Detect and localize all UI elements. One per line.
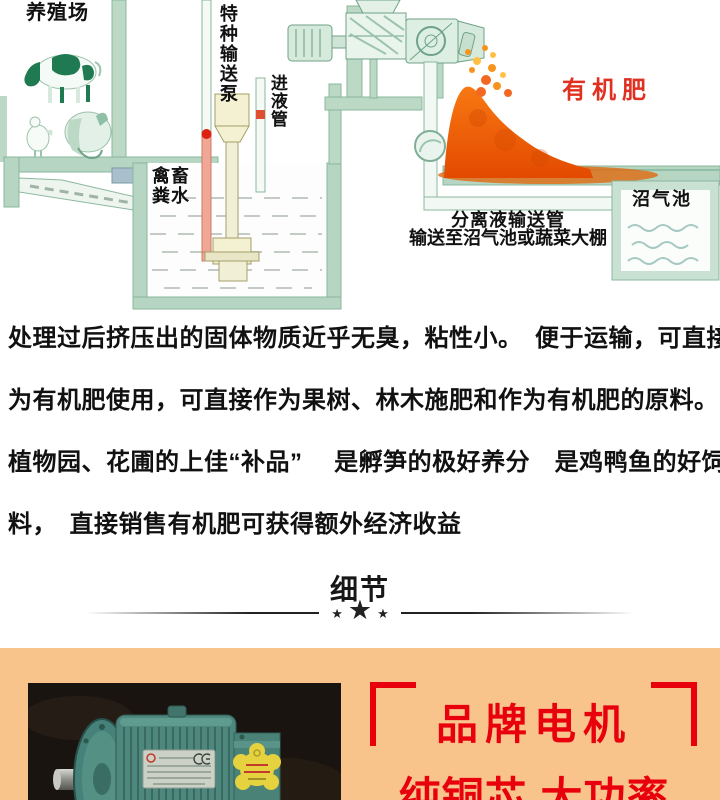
pipe-caption-line2: 输送至沼气池或蔬菜大棚	[356, 229, 660, 248]
valve-illustration	[415, 131, 445, 161]
inlet-pipe-label: 进液管	[268, 74, 286, 128]
star-icon: ★	[372, 607, 394, 620]
product-description: 处理过后挤压出的固体物质近乎无臭，粘性小。 便于运输，可直接作 为有机肥使用，可…	[8, 308, 714, 556]
divider-line-left	[86, 612, 319, 614]
product-detail-page: 养殖场 特种输送泵 进液管 禽畜粪水 有机肥 沼气池 分离液输送管 输送至沼气池…	[0, 0, 720, 800]
star-icon: ★	[348, 597, 372, 624]
promo-headline: 品牌电机	[374, 691, 694, 752]
promo-subheadline: 纯铜芯 大功率	[360, 764, 708, 800]
description-line: 料， 直接销售有机肥可获得额外经济收益	[8, 494, 714, 556]
pipe-level-dot	[202, 129, 212, 139]
process-diagram-illustration	[0, 0, 720, 312]
organic-fertilizer-label: 有机肥	[562, 78, 652, 103]
divider-line-right	[401, 612, 634, 614]
star-icon: ★	[326, 607, 348, 620]
biogas-pool-label: 沼气池	[632, 190, 692, 209]
promo-section: 品牌电机 纯铜芯 大功率	[0, 648, 720, 800]
manure-water-label: 禽畜粪水	[152, 166, 194, 206]
process-diagram: 养殖场 特种输送泵 进液管 禽畜粪水 有机肥 沼气池 分离液输送管 输送至沼气池…	[0, 0, 720, 312]
description-line: 处理过后挤压出的固体物质近乎无臭，粘性小。 便于运输，可直接作	[8, 308, 714, 370]
description-line: 为有机肥使用，可直接作为果树、林木施肥和作为有机肥的原料。 是	[8, 370, 714, 432]
motor-photo	[28, 683, 341, 800]
motor-nameplate	[143, 750, 215, 788]
detail-divider: ★ ★ ★	[0, 602, 720, 624]
farm-label: 养殖场	[26, 3, 89, 24]
description-line: 植物园、花圃的上佳“补品” 是孵笋的极好养分 是鸡鸭鱼的好饲	[8, 432, 714, 494]
pump-label: 特种输送泵	[218, 4, 237, 104]
